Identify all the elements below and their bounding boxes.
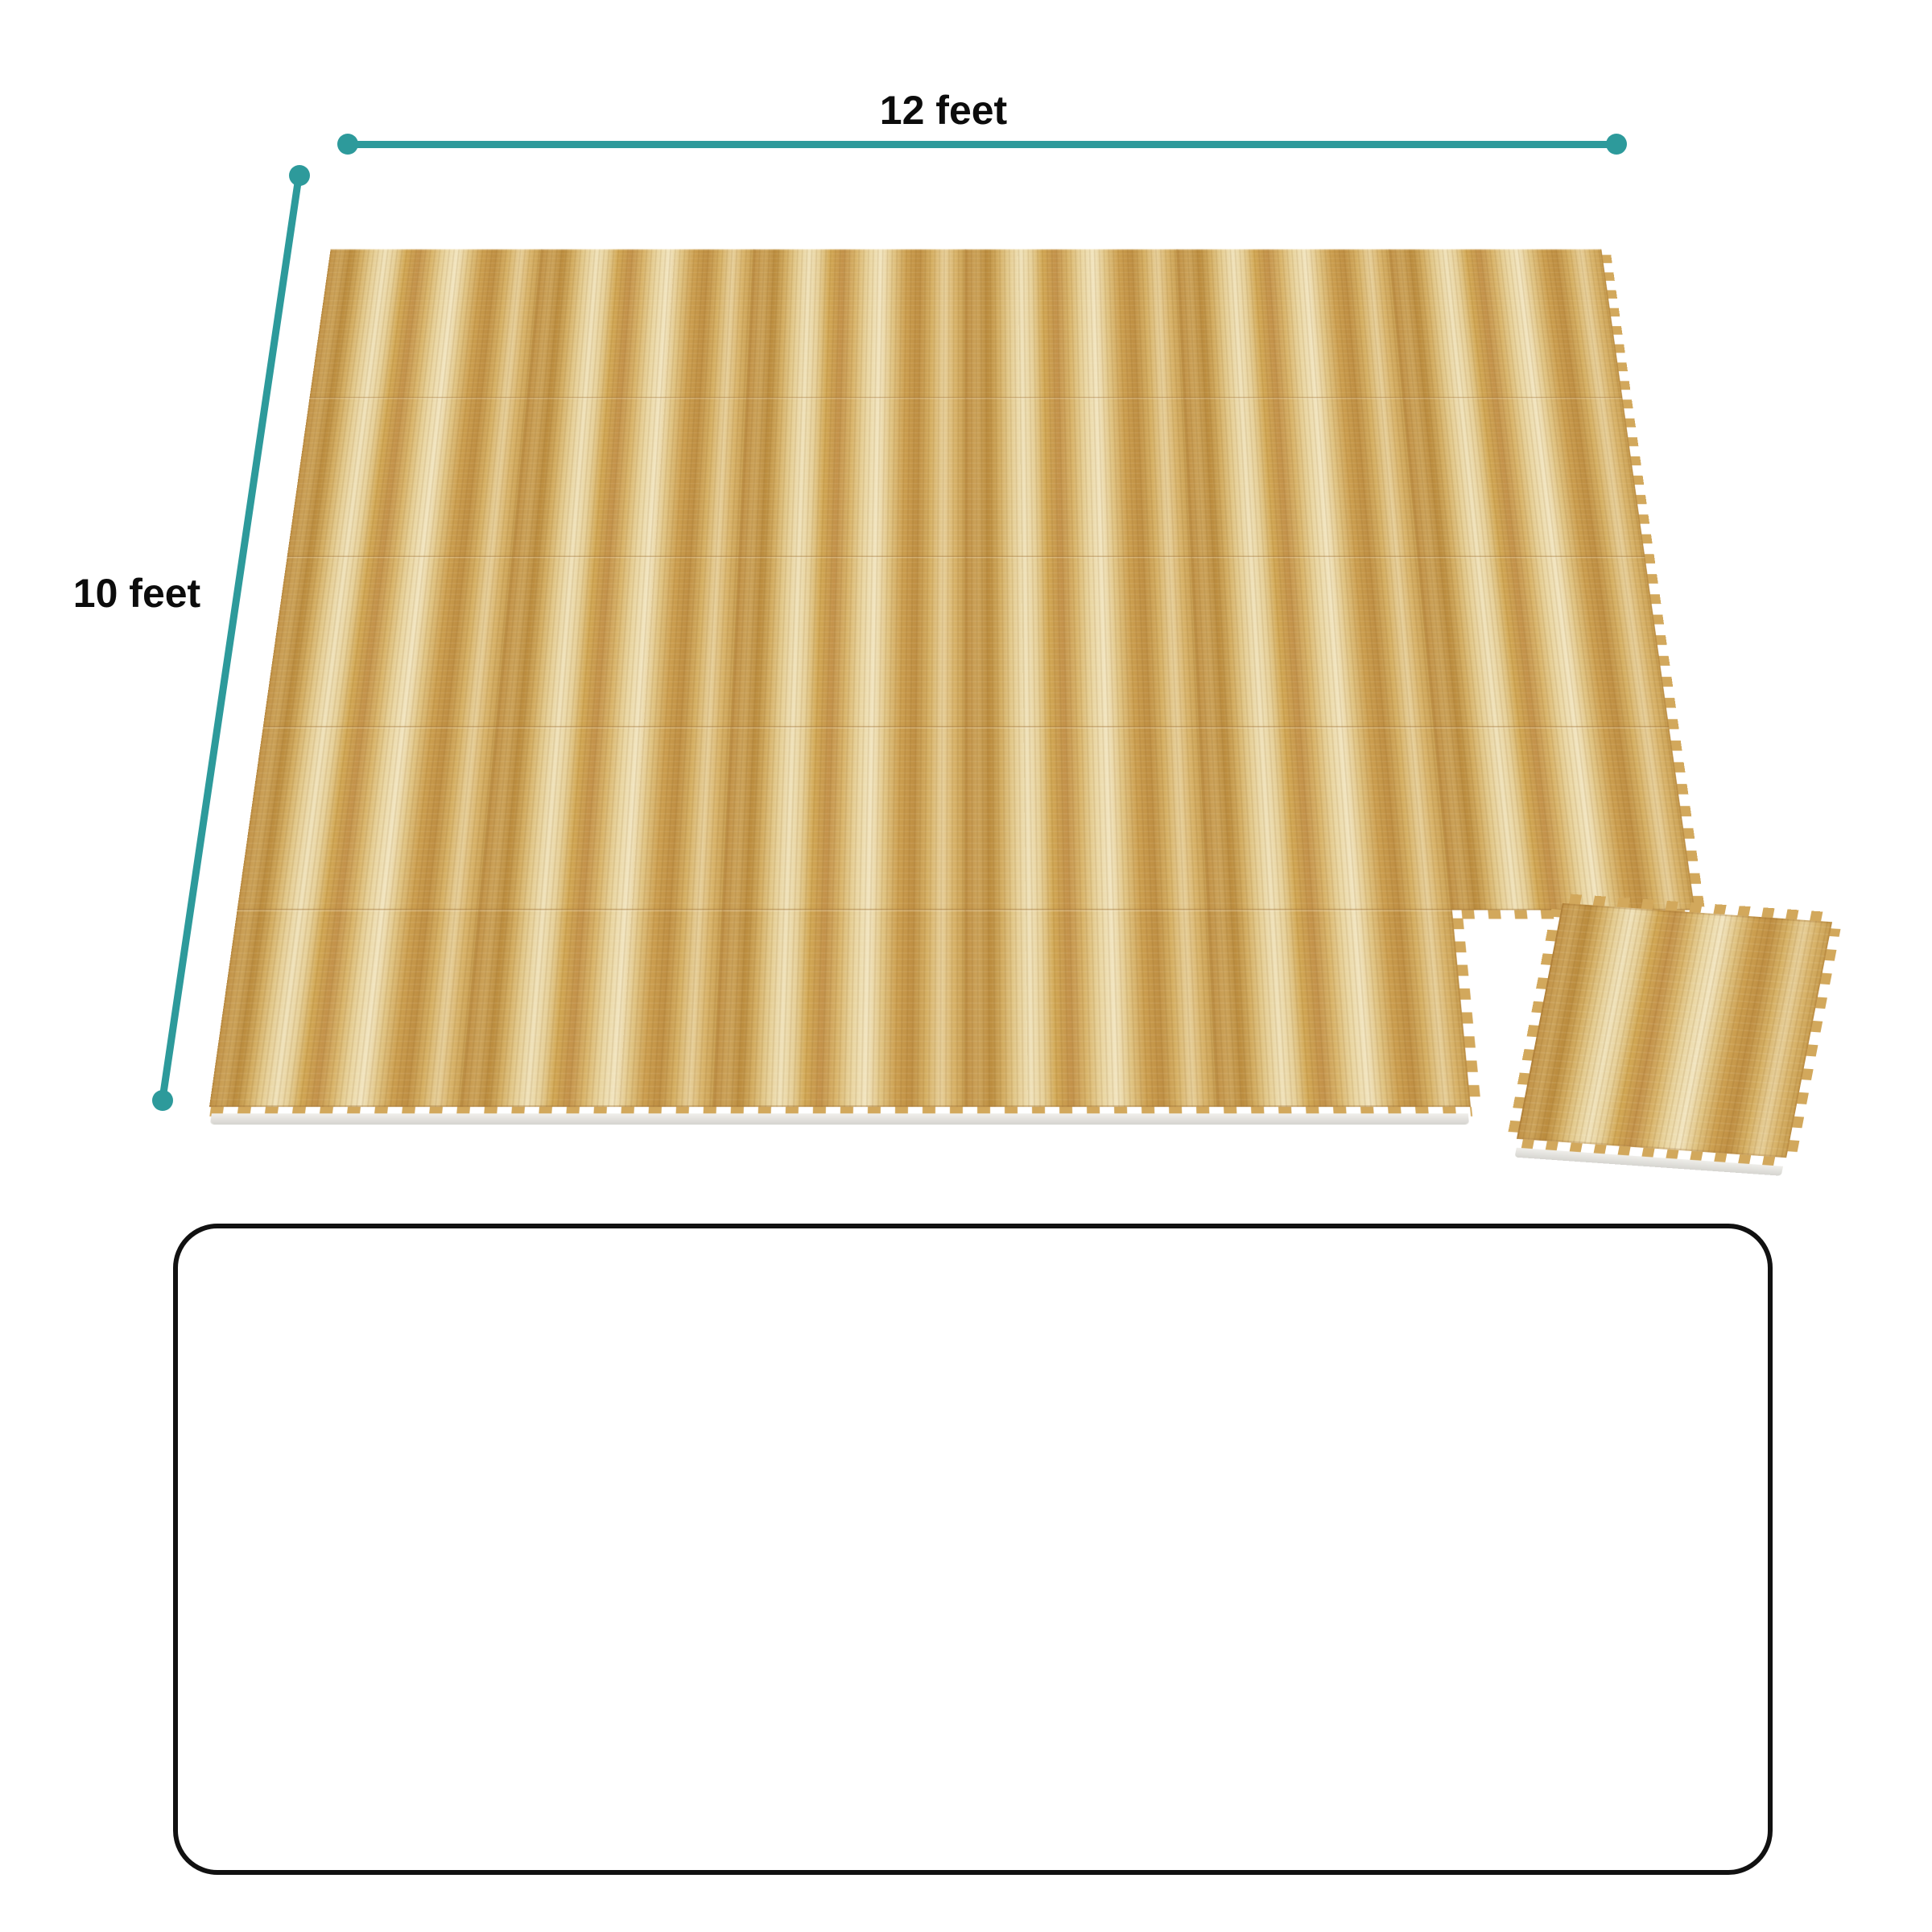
mat-tile xyxy=(1404,398,1645,557)
mat-tile xyxy=(287,398,529,557)
mat-tile xyxy=(480,727,732,910)
mat-tile xyxy=(461,910,723,1107)
width-dimension-line xyxy=(348,141,1616,148)
mat-tile xyxy=(966,398,1192,557)
mat-tile xyxy=(1389,250,1622,398)
mat-tile xyxy=(966,250,1185,398)
mat-tile xyxy=(1178,250,1404,398)
dimension-endpoint-dot xyxy=(337,134,358,155)
mat-tile xyxy=(263,557,514,728)
mat-tile xyxy=(1435,727,1695,910)
mat-tile xyxy=(740,398,966,557)
mat-tile xyxy=(966,557,1200,728)
product-infographic: 12 feet 10 feet xyxy=(0,0,1932,1932)
mat-tile xyxy=(497,557,740,728)
mat-tile xyxy=(732,557,966,728)
mat-tile xyxy=(966,910,1218,1107)
width-dimension-label: 12 feet xyxy=(823,87,1064,134)
mat-tile xyxy=(528,250,754,398)
mat-tile xyxy=(310,250,543,398)
mat-tile xyxy=(1185,398,1418,557)
mat-tile xyxy=(1209,910,1471,1107)
mat-tile xyxy=(966,727,1209,910)
height-dimension-label: 10 feet xyxy=(44,570,229,617)
loose-puzzle-tile xyxy=(1517,903,1832,1158)
mat-grid xyxy=(209,250,1723,1107)
foam-mat-perspective xyxy=(209,250,1723,1107)
mat-tile xyxy=(747,250,966,398)
tile-teeth xyxy=(1788,928,1841,1152)
mat-tile xyxy=(209,910,480,1107)
dimension-endpoint-dot xyxy=(289,165,310,186)
mat-tile xyxy=(723,727,966,910)
mat-tile xyxy=(1192,557,1435,728)
mat-tile xyxy=(714,910,966,1107)
mat-tile xyxy=(1418,557,1669,728)
dimension-endpoint-dot xyxy=(152,1090,173,1111)
dimension-endpoint-dot xyxy=(1606,134,1627,155)
mat-tile xyxy=(514,398,747,557)
mat-tile xyxy=(1200,727,1452,910)
features-panel: BPA FREE xyxy=(173,1224,1773,1875)
mat-tile xyxy=(237,727,497,910)
mat-thickness-edge xyxy=(210,1113,1469,1125)
